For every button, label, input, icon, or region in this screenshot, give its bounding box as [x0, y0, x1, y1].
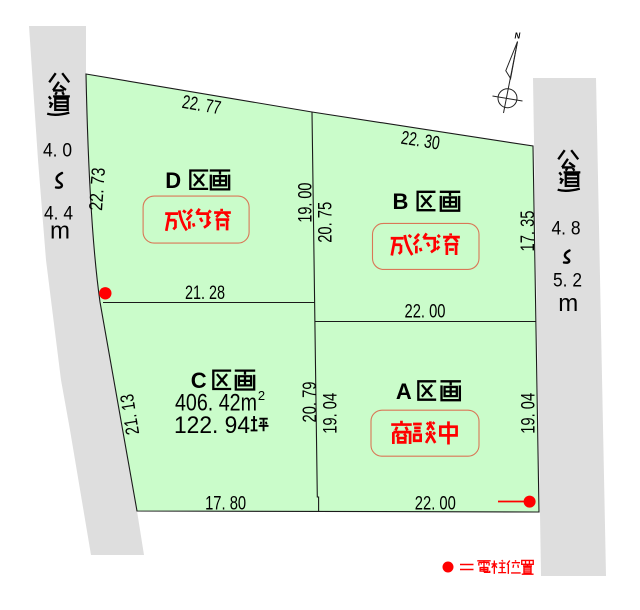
svg-text:22. 00: 22. 00 — [415, 493, 456, 514]
svg-text:20. 75: 20. 75 — [316, 202, 337, 243]
svg-text:122. 94: 122. 94 — [174, 412, 250, 439]
svg-text:D: D — [165, 168, 181, 193]
svg-text:2: 2 — [258, 388, 265, 403]
svg-text:20. 79: 20. 79 — [300, 382, 321, 423]
svg-text:19. 04: 19. 04 — [519, 392, 540, 433]
svg-text:19. 00: 19. 00 — [296, 183, 317, 223]
svg-text:4. 8: 4. 8 — [552, 219, 581, 240]
svg-text:17. 35: 17. 35 — [518, 211, 539, 252]
svg-text:m: m — [50, 218, 70, 245]
svg-text:21. 28: 21. 28 — [185, 283, 225, 304]
svg-text:m: m — [558, 290, 578, 317]
svg-text:B: B — [393, 189, 409, 214]
svg-text:4. 0: 4. 0 — [43, 141, 72, 162]
svg-text:A: A — [396, 379, 412, 404]
svg-text:5. 2: 5. 2 — [553, 271, 582, 292]
svg-text:19. 04: 19. 04 — [321, 392, 342, 433]
svg-text:22. 73: 22. 73 — [86, 167, 110, 211]
svg-text:N: N — [515, 32, 521, 41]
svg-text:22. 00: 22. 00 — [405, 301, 446, 322]
svg-text:17. 80: 17. 80 — [205, 494, 246, 515]
